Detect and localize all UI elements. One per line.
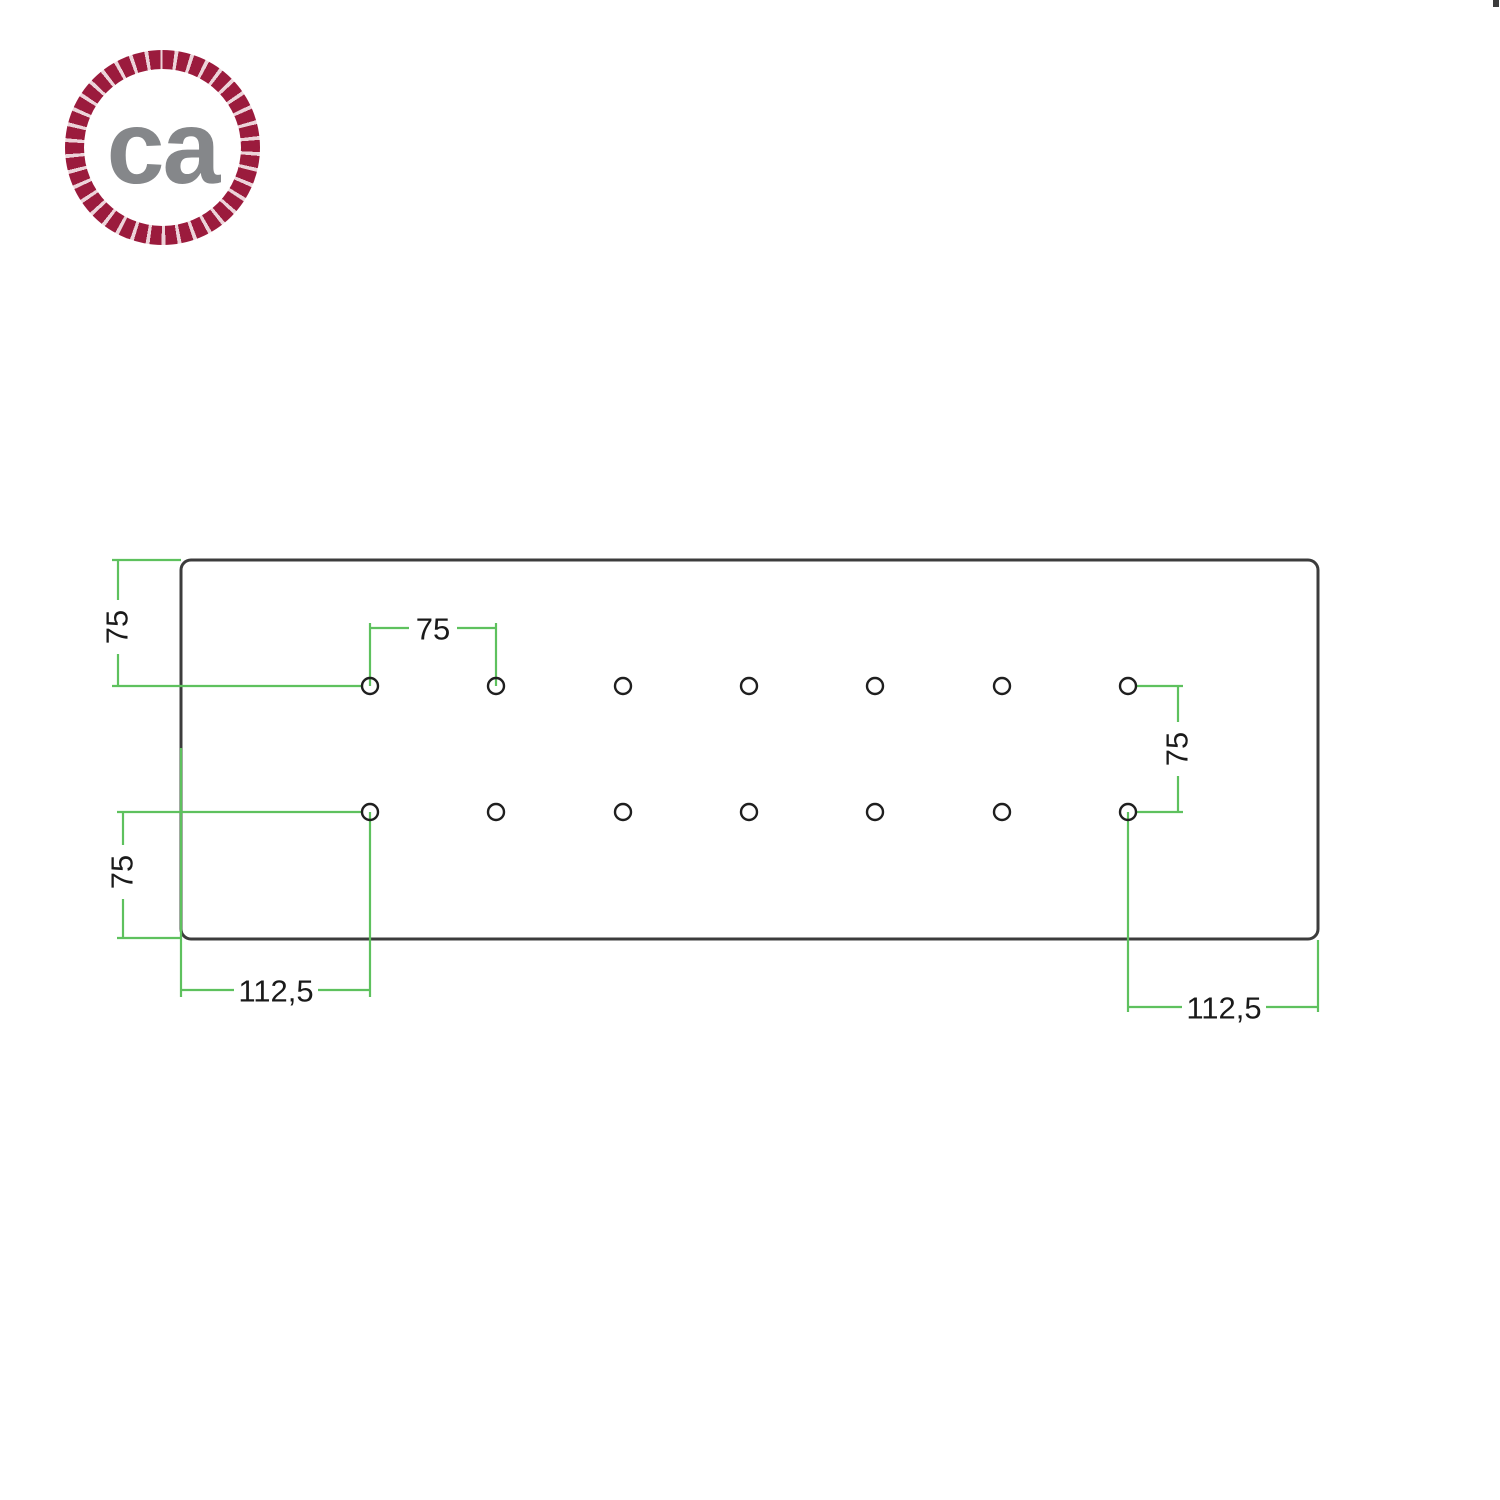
cable-hole — [867, 804, 883, 820]
cable-holes — [362, 678, 1136, 820]
cable-hole — [994, 678, 1010, 694]
technical-drawing: 75 75 75 75 112,5 112,5 — [0, 0, 1500, 1500]
cable-hole — [994, 804, 1010, 820]
dimension-label: 75 — [105, 855, 140, 889]
corner-artifact — [1493, 0, 1499, 7]
dimension-label: 75 — [100, 610, 135, 644]
dimension-label: 75 — [1160, 732, 1195, 766]
cable-hole — [741, 804, 757, 820]
dimension-label: 75 — [416, 612, 450, 647]
cable-hole — [1120, 678, 1136, 694]
dimension-labels: 75 75 75 75 112,5 112,5 — [100, 610, 1262, 1026]
cable-hole — [741, 678, 757, 694]
plate-outline-group — [181, 0, 1499, 939]
plate-outline — [181, 560, 1318, 939]
cable-hole — [867, 678, 883, 694]
dimension-label: 112,5 — [238, 974, 313, 1009]
cable-hole — [615, 678, 631, 694]
cable-hole — [488, 804, 504, 820]
cable-hole — [615, 804, 631, 820]
dimension-lines — [112, 560, 1318, 1012]
dimension-label: 112,5 — [1186, 991, 1261, 1026]
